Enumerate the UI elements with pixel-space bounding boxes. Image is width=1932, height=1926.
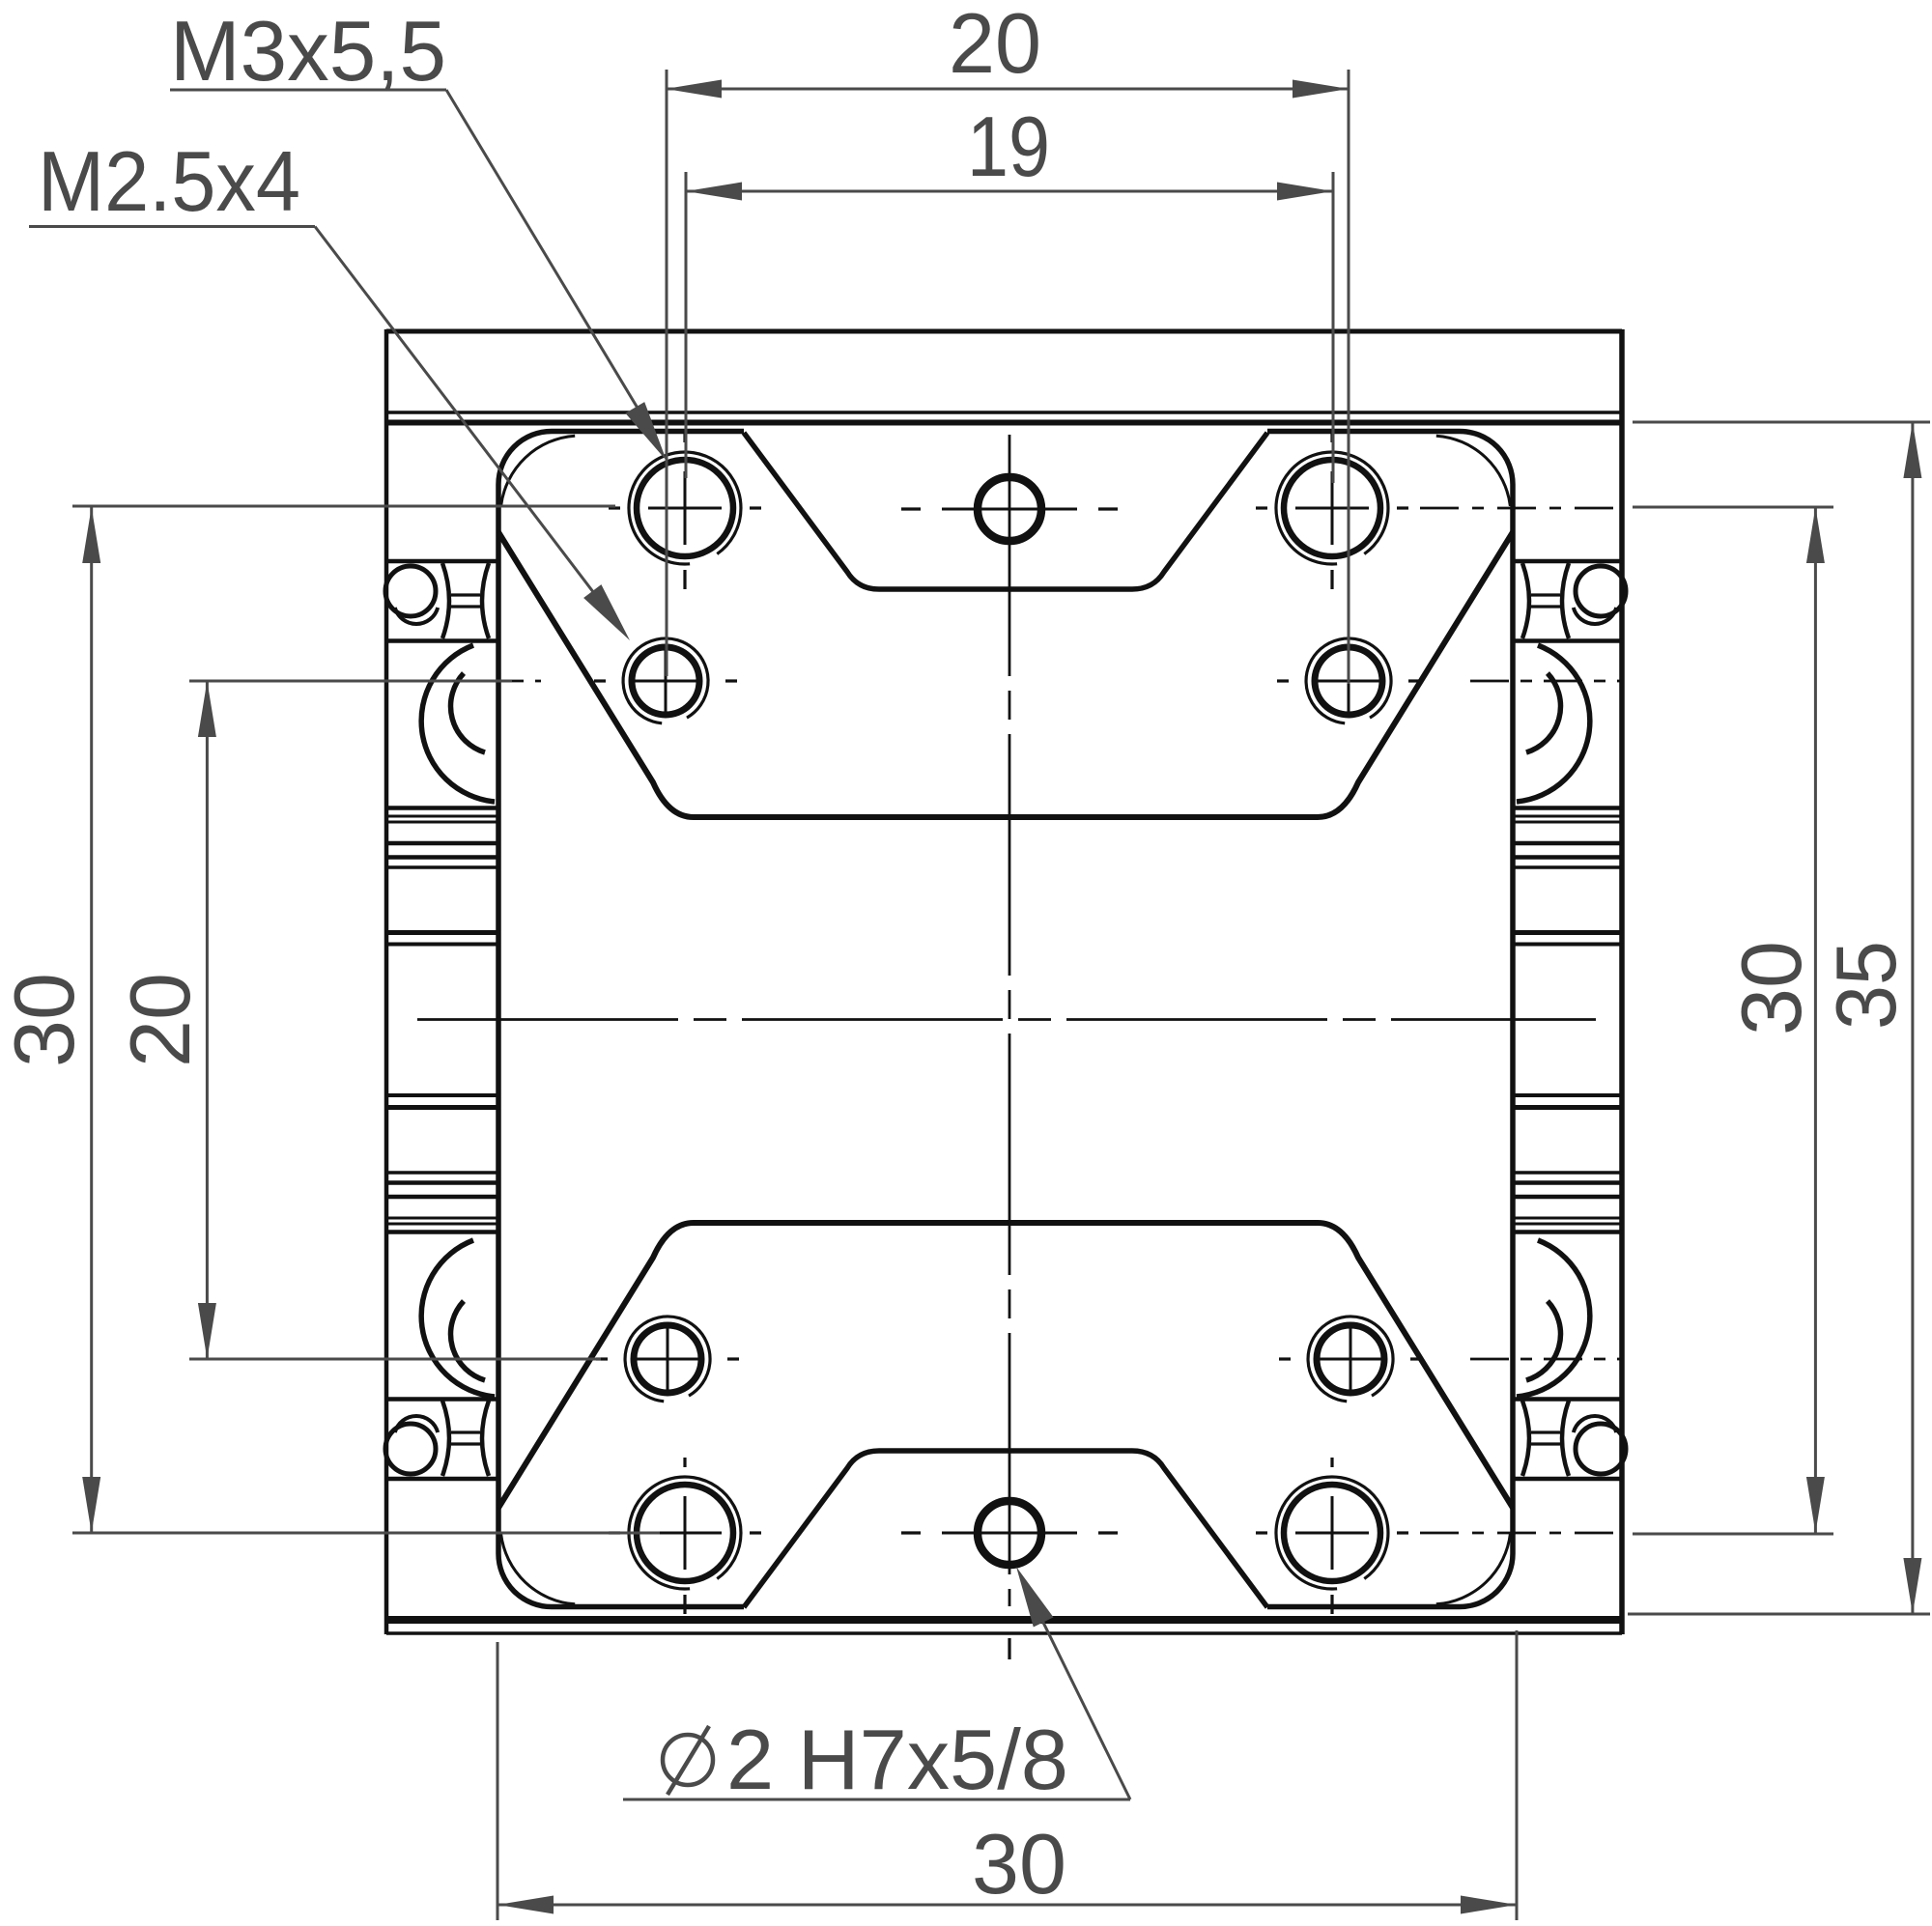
svg-text:19: 19 <box>967 99 1050 194</box>
svg-text:M3x5,5: M3x5,5 <box>170 3 446 99</box>
svg-text:30: 30 <box>1723 941 1819 1035</box>
svg-text:20: 20 <box>949 0 1041 91</box>
svg-text:35: 35 <box>1818 941 1914 1030</box>
svg-text:30: 30 <box>0 973 92 1067</box>
svg-text:30: 30 <box>972 1816 1066 1912</box>
svg-text:20: 20 <box>112 973 208 1067</box>
svg-text:M2.5x4: M2.5x4 <box>38 133 300 229</box>
svg-text:2 H7x5/8: 2 H7x5/8 <box>726 1712 1068 1807</box>
